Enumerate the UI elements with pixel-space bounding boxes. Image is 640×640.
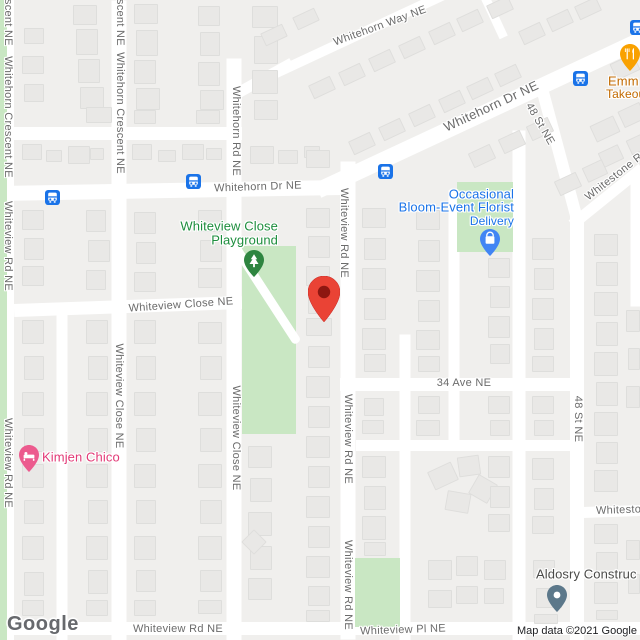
building [88, 428, 108, 452]
building [596, 442, 618, 464]
building [88, 570, 108, 594]
building [24, 28, 44, 44]
building [418, 396, 440, 414]
street-label: Whitehorn Crescent NE [114, 52, 126, 174]
building [348, 132, 376, 156]
street-label: Whiteview Close NE [113, 343, 125, 448]
occasional-bloom-event-florist-pin[interactable] [480, 229, 500, 256]
building [594, 234, 618, 256]
building [532, 356, 554, 372]
building [589, 115, 620, 142]
road [631, 174, 640, 306]
park-area [355, 558, 400, 627]
building [308, 466, 330, 488]
building [22, 536, 44, 560]
transit-station-icon[interactable] [378, 164, 393, 179]
street-label: Whiteview Rd NE [133, 623, 223, 635]
building [46, 150, 62, 162]
transit-station-icon[interactable] [186, 174, 201, 189]
building [364, 354, 386, 372]
building [88, 356, 108, 380]
building [362, 328, 386, 350]
street-label: Whiteview Rd NE [2, 418, 14, 508]
building [427, 461, 459, 490]
building [22, 320, 44, 344]
building [594, 524, 618, 544]
building [378, 118, 406, 142]
building [198, 464, 222, 488]
building [306, 150, 330, 168]
building [362, 456, 386, 478]
building [418, 300, 440, 322]
building [198, 600, 222, 614]
building [200, 356, 222, 380]
building [532, 516, 554, 534]
building [252, 70, 278, 94]
building [626, 386, 640, 408]
building [22, 144, 42, 160]
building [22, 56, 44, 74]
emma-takeout-pin[interactable] [620, 44, 640, 71]
building [136, 356, 156, 380]
building [626, 310, 640, 332]
building [594, 582, 618, 604]
building [617, 102, 640, 128]
whiteview-close-playground-pin[interactable] [244, 250, 264, 277]
building [338, 63, 366, 87]
building [488, 396, 510, 414]
building [364, 298, 386, 320]
building [88, 240, 110, 262]
building [532, 396, 554, 414]
building [596, 382, 618, 406]
street-label: 48 St NE [572, 396, 584, 442]
building [484, 588, 504, 604]
building [488, 316, 510, 338]
building [364, 542, 386, 556]
building [518, 22, 546, 46]
building [22, 210, 44, 230]
building [308, 526, 330, 548]
street-label: Whitestone [596, 503, 640, 517]
building [456, 586, 478, 604]
building [278, 150, 298, 164]
building [198, 392, 222, 416]
street-label: Whitehorn Crescent NE [114, 0, 126, 46]
building [362, 516, 386, 540]
road [535, 83, 583, 221]
map-canvas[interactable]: Whitehorn Crescent NEWhitehorn Crescent … [0, 0, 640, 640]
building [490, 420, 510, 436]
building [444, 490, 471, 514]
building [206, 148, 222, 160]
building [252, 6, 278, 28]
building [306, 436, 330, 458]
building [136, 30, 158, 56]
building [86, 210, 106, 232]
building [484, 560, 506, 580]
poi-label[interactable]: Takeou [606, 87, 640, 101]
street-label: Whiteview Rd NE [342, 394, 354, 484]
building [308, 406, 330, 428]
road [256, 0, 523, 86]
street-label: Whiteview Close NE [230, 385, 242, 490]
building [308, 236, 330, 258]
destination-marker[interactable] [308, 276, 340, 322]
building [76, 29, 98, 55]
building [308, 586, 330, 606]
building [134, 320, 156, 344]
building [626, 540, 640, 560]
building [254, 100, 278, 120]
building [134, 212, 156, 234]
building [628, 348, 640, 370]
building [362, 208, 386, 228]
building [418, 356, 440, 372]
building [532, 298, 554, 320]
building [182, 144, 204, 160]
building [308, 346, 330, 368]
building [24, 500, 44, 524]
street-label: Whitehorn Crescent NE [2, 56, 14, 178]
building [456, 9, 484, 33]
building [198, 268, 222, 288]
building [134, 464, 156, 488]
building [132, 144, 152, 160]
building [24, 572, 44, 596]
building [250, 146, 274, 164]
building [490, 286, 510, 308]
building [250, 478, 272, 502]
building [490, 344, 510, 364]
building [68, 146, 90, 164]
building [596, 322, 618, 346]
building [248, 578, 272, 600]
transit-station-icon[interactable] [573, 71, 588, 86]
road [14, 127, 242, 140]
building [456, 556, 478, 576]
building [364, 398, 384, 416]
building [574, 0, 602, 20]
aldosry-construction-pin[interactable] [547, 585, 567, 612]
building [22, 392, 44, 416]
building [86, 107, 112, 123]
building [554, 172, 583, 197]
building [534, 614, 558, 624]
building [416, 420, 440, 436]
street-label: Whitehorn Crescent NE [2, 0, 14, 46]
building [86, 320, 108, 344]
building [90, 148, 104, 160]
building [490, 486, 510, 508]
building [134, 600, 156, 616]
building [198, 322, 222, 344]
building [198, 62, 220, 86]
street-label: Whiteview Rd NE [2, 201, 14, 291]
building [73, 5, 97, 25]
transit-station-icon[interactable] [630, 20, 640, 35]
road [57, 314, 68, 640]
building [248, 446, 272, 468]
street-label: Whiteview Rd NE [338, 188, 350, 278]
poi-label[interactable]: Bloom-Event Florist [399, 200, 514, 215]
building [308, 76, 336, 100]
building [306, 376, 330, 398]
building [78, 59, 100, 83]
kimjen-chico-pin[interactable] [19, 445, 39, 472]
building [594, 352, 618, 376]
building [200, 428, 222, 452]
building [532, 238, 554, 260]
building [134, 60, 156, 84]
building [24, 238, 44, 260]
building [86, 600, 108, 616]
building [306, 610, 330, 622]
map-attribution: Map data ©2021 Google [517, 625, 637, 637]
street-label: 34 Ave NE [437, 377, 491, 389]
road [356, 440, 584, 451]
building [418, 240, 440, 262]
building [428, 22, 456, 46]
building [306, 208, 330, 228]
google-logo[interactable]: Google [7, 613, 79, 636]
building [488, 514, 510, 532]
building [196, 110, 220, 124]
building [134, 272, 156, 292]
building [86, 270, 106, 290]
building [594, 470, 618, 492]
building [136, 428, 156, 452]
building [134, 4, 158, 24]
building [488, 456, 510, 478]
building [364, 486, 386, 510]
building [398, 36, 426, 60]
building [428, 560, 452, 580]
building [486, 0, 514, 19]
building [80, 87, 104, 109]
building [468, 144, 497, 169]
building [596, 610, 618, 620]
building [198, 6, 220, 26]
building [546, 9, 574, 33]
building [86, 536, 108, 560]
poi-label[interactable]: Kimjen Chico [42, 450, 120, 465]
building [136, 242, 156, 264]
street-label: Whiteview Rd NE [342, 540, 354, 630]
building [596, 262, 618, 286]
building [86, 464, 108, 488]
building [488, 258, 510, 278]
transit-station-icon[interactable] [45, 190, 60, 205]
building [134, 110, 156, 124]
building [594, 412, 618, 436]
building [198, 536, 222, 560]
building [368, 49, 396, 73]
building [200, 500, 222, 524]
building [158, 150, 176, 162]
poi-label[interactable]: Aldosry Construc [536, 567, 637, 582]
building [534, 488, 554, 510]
building [594, 292, 618, 316]
building [534, 420, 554, 436]
street-label: Whiteview Close NE [128, 295, 234, 314]
building [292, 8, 320, 31]
building [88, 500, 108, 524]
building [362, 268, 386, 290]
street-label: Whiteview Pl NE [360, 623, 446, 638]
poi-label[interactable]: Whiteview Close [180, 219, 278, 234]
building [136, 500, 156, 524]
building [416, 330, 440, 350]
building [134, 392, 156, 416]
building [136, 88, 160, 110]
building [136, 570, 156, 592]
building [438, 90, 466, 114]
building [200, 90, 224, 110]
building [466, 77, 494, 101]
building [200, 32, 220, 56]
building [24, 84, 44, 102]
building [532, 458, 554, 480]
building [134, 536, 156, 560]
building [534, 328, 554, 350]
building [22, 266, 44, 286]
building [428, 590, 452, 608]
building [364, 238, 386, 260]
building [306, 496, 330, 518]
building [534, 268, 554, 290]
building [24, 356, 44, 380]
building [306, 556, 330, 578]
building [408, 104, 436, 128]
poi-label[interactable]: Delivery [470, 214, 514, 228]
building [362, 420, 384, 434]
street-label: Whitehorn Rd NE [230, 86, 242, 176]
poi-label[interactable]: Playground [211, 233, 278, 248]
building [86, 392, 108, 416]
building [200, 570, 222, 592]
building [416, 270, 440, 292]
